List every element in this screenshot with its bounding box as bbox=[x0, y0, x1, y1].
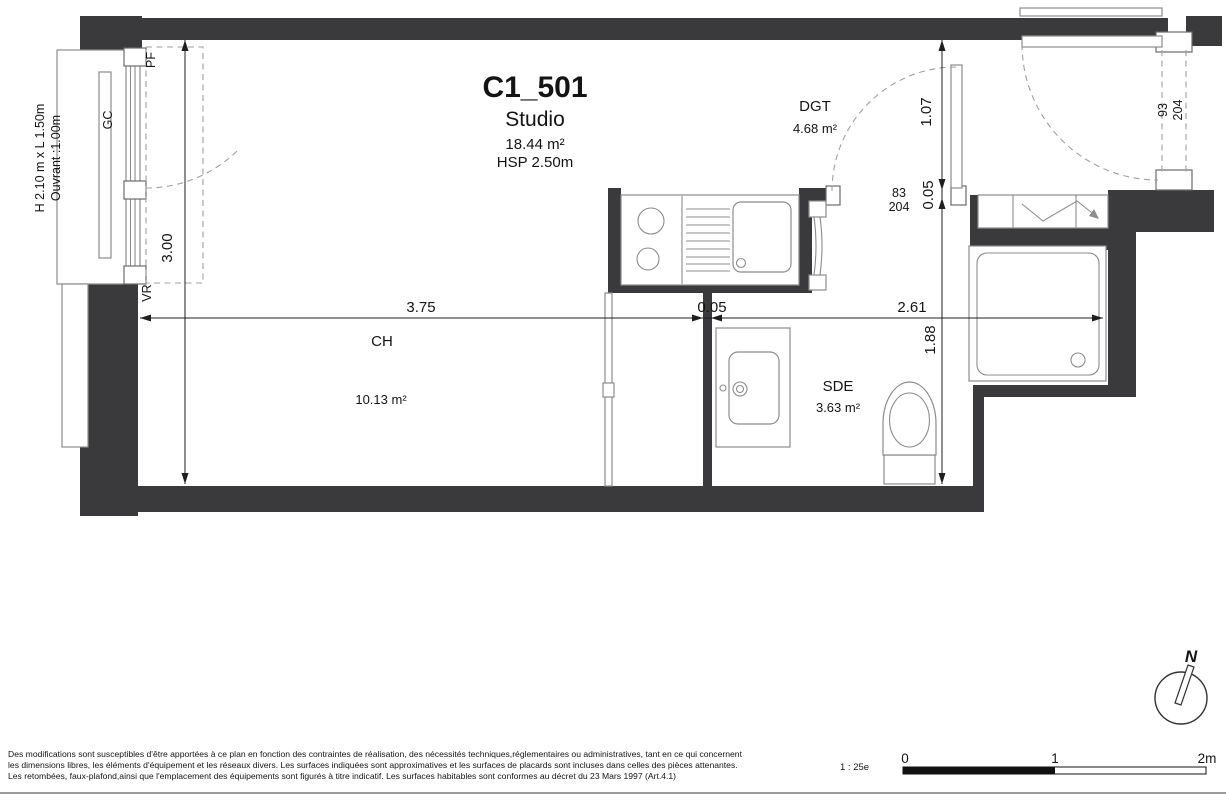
disclaimer-line-3: Les retombées, faux-plafond,ainsi que l'… bbox=[8, 771, 676, 781]
room-ch-code: CH bbox=[371, 333, 393, 350]
room-sde-area: 3.63 m² bbox=[816, 400, 861, 415]
guardrail bbox=[99, 72, 111, 258]
room-dgt-code: DGT bbox=[799, 98, 831, 115]
mullion-bottom bbox=[124, 266, 146, 284]
dim-sde-width: 2.61 bbox=[897, 299, 926, 316]
dim-sde-depth: 1.88 bbox=[922, 325, 939, 354]
north-needle bbox=[1175, 665, 1194, 705]
entry-wall-band bbox=[1108, 190, 1214, 213]
guardrail-label: GC bbox=[101, 111, 115, 130]
mullion-top bbox=[124, 48, 146, 66]
sde-door-hinge-jamb bbox=[951, 186, 966, 205]
entry-door-height: 204 bbox=[1171, 100, 1185, 121]
dim-ch-width: 3.75 bbox=[406, 299, 435, 316]
top-wall bbox=[130, 18, 1168, 40]
page-bottom-rule bbox=[0, 792, 1226, 794]
sde-door-width: 83 bbox=[892, 186, 906, 200]
toilet-tank bbox=[884, 455, 935, 484]
unit-area: 18.44 m² bbox=[505, 136, 564, 153]
window-frame bbox=[126, 52, 140, 282]
entry-closet bbox=[978, 195, 1108, 228]
kitchen-left-wall bbox=[608, 188, 621, 293]
dim-dgt-depth: 1.07 bbox=[918, 97, 935, 126]
window-opening-label: Ouvrant :1.00m bbox=[49, 115, 63, 201]
entry-wall-band-2 bbox=[1136, 213, 1214, 232]
scale-tick-0: 0 bbox=[901, 751, 909, 766]
disclaimer-line-1: Des modifications sont susceptibles d'êt… bbox=[8, 749, 743, 759]
unit-id: C1_501 bbox=[482, 71, 587, 104]
disclaimer-line-2: les dimensions libres, les éléments d'éq… bbox=[8, 760, 738, 770]
ceiling-height: HSP 2.50m bbox=[497, 154, 573, 171]
scale-tick-1: 1 bbox=[1051, 751, 1059, 766]
shower-niche-right-wall bbox=[1108, 190, 1136, 393]
sde-door-height: 204 bbox=[889, 200, 910, 214]
kitchen-sink bbox=[733, 202, 791, 272]
shower bbox=[969, 246, 1106, 381]
entry-door-width: 93 bbox=[1156, 103, 1170, 117]
sde-door-leaf bbox=[951, 65, 962, 188]
washbasin bbox=[716, 328, 790, 447]
entry-door-swing-arc bbox=[1022, 44, 1158, 180]
kitchenette bbox=[621, 195, 826, 290]
sliding-partition-handle bbox=[603, 383, 614, 397]
bottom-wall bbox=[88, 486, 984, 512]
exterior-slab-edge bbox=[62, 284, 88, 447]
sde-right-wall bbox=[973, 390, 984, 490]
scale-bar-filled-segment bbox=[903, 767, 1055, 774]
closet-body bbox=[978, 195, 1108, 228]
sde-door-swing-arc bbox=[832, 67, 956, 191]
mullion-middle bbox=[124, 181, 146, 199]
dim-wall-ch-sde: 0.05 bbox=[697, 299, 726, 316]
floor-plan-drawing: 3.75 0.05 2.61 3.00 1.07 0.05 1.88 83 20… bbox=[0, 0, 1226, 800]
entry-door-bottom-jamb bbox=[1156, 170, 1192, 190]
north-label: N bbox=[1185, 647, 1198, 666]
entry-landing-ledge bbox=[1020, 8, 1162, 16]
entry-door-leaf bbox=[1022, 36, 1162, 47]
sliding-partition bbox=[603, 293, 614, 486]
dim-wall-dgt-sde: 0.05 bbox=[920, 180, 937, 209]
scale-bar: 0 1 2m bbox=[901, 751, 1216, 774]
scale-label: 1 : 25e bbox=[840, 762, 869, 773]
room-dgt-area: 4.68 m² bbox=[793, 121, 838, 136]
casement-swing-arc bbox=[146, 150, 238, 188]
window-bay bbox=[57, 50, 133, 284]
window-pf-label: PF bbox=[144, 52, 158, 68]
unit-type: Studio bbox=[505, 108, 565, 131]
floor-plan-page: 3.75 0.05 2.61 3.00 1.07 0.05 1.88 83 20… bbox=[0, 0, 1226, 800]
window-assembly bbox=[57, 47, 238, 447]
room-sde-code: SDE bbox=[823, 378, 854, 395]
scale-tick-2: 2m bbox=[1198, 751, 1217, 766]
dim-ch-height: 3.00 bbox=[159, 233, 176, 262]
sde-door-jamb bbox=[826, 186, 840, 205]
north-arrow: N bbox=[1155, 647, 1207, 724]
shutter-label: VR bbox=[140, 284, 154, 301]
room-ch-area: 10.13 m² bbox=[355, 392, 407, 407]
top-left-pillar bbox=[80, 16, 116, 52]
footer: Des modifications sont susceptibles d'êt… bbox=[0, 647, 1226, 794]
window-size-label: H 2.10 m x L 1.50m bbox=[33, 104, 47, 213]
toilet bbox=[883, 382, 936, 484]
